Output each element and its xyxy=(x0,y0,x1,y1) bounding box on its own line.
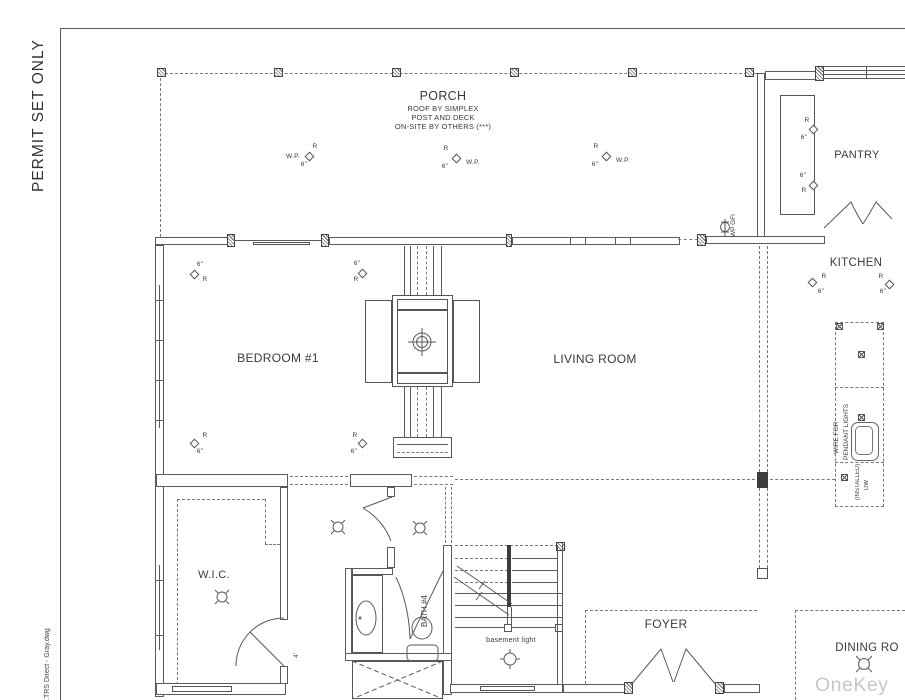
floor-plan-sheet: PERMIT SET ONLY .TRS Direct - Gray.dwg P… xyxy=(0,0,905,700)
hall-door-swing xyxy=(363,497,392,541)
plan-curves-overlay xyxy=(0,0,905,700)
ceiling-light-icon xyxy=(413,521,427,535)
wic-door-swing xyxy=(236,618,284,666)
sink-icon xyxy=(356,601,376,635)
shower-x-mark xyxy=(352,661,443,699)
ceiling-light-icon xyxy=(856,656,872,672)
bath-door-swing xyxy=(396,571,443,639)
stair-break-line xyxy=(454,566,512,615)
ceiling-light-icon xyxy=(215,590,229,604)
pantry-double-door-swing xyxy=(824,202,892,228)
chimney-flue-icon xyxy=(408,328,436,356)
entry-double-door-swing xyxy=(631,649,716,685)
ceiling-light-icon xyxy=(331,520,345,534)
toilet-icon xyxy=(407,617,438,661)
outlet-wp-gfi-icon xyxy=(721,219,730,236)
basement-light-icon xyxy=(500,649,520,669)
